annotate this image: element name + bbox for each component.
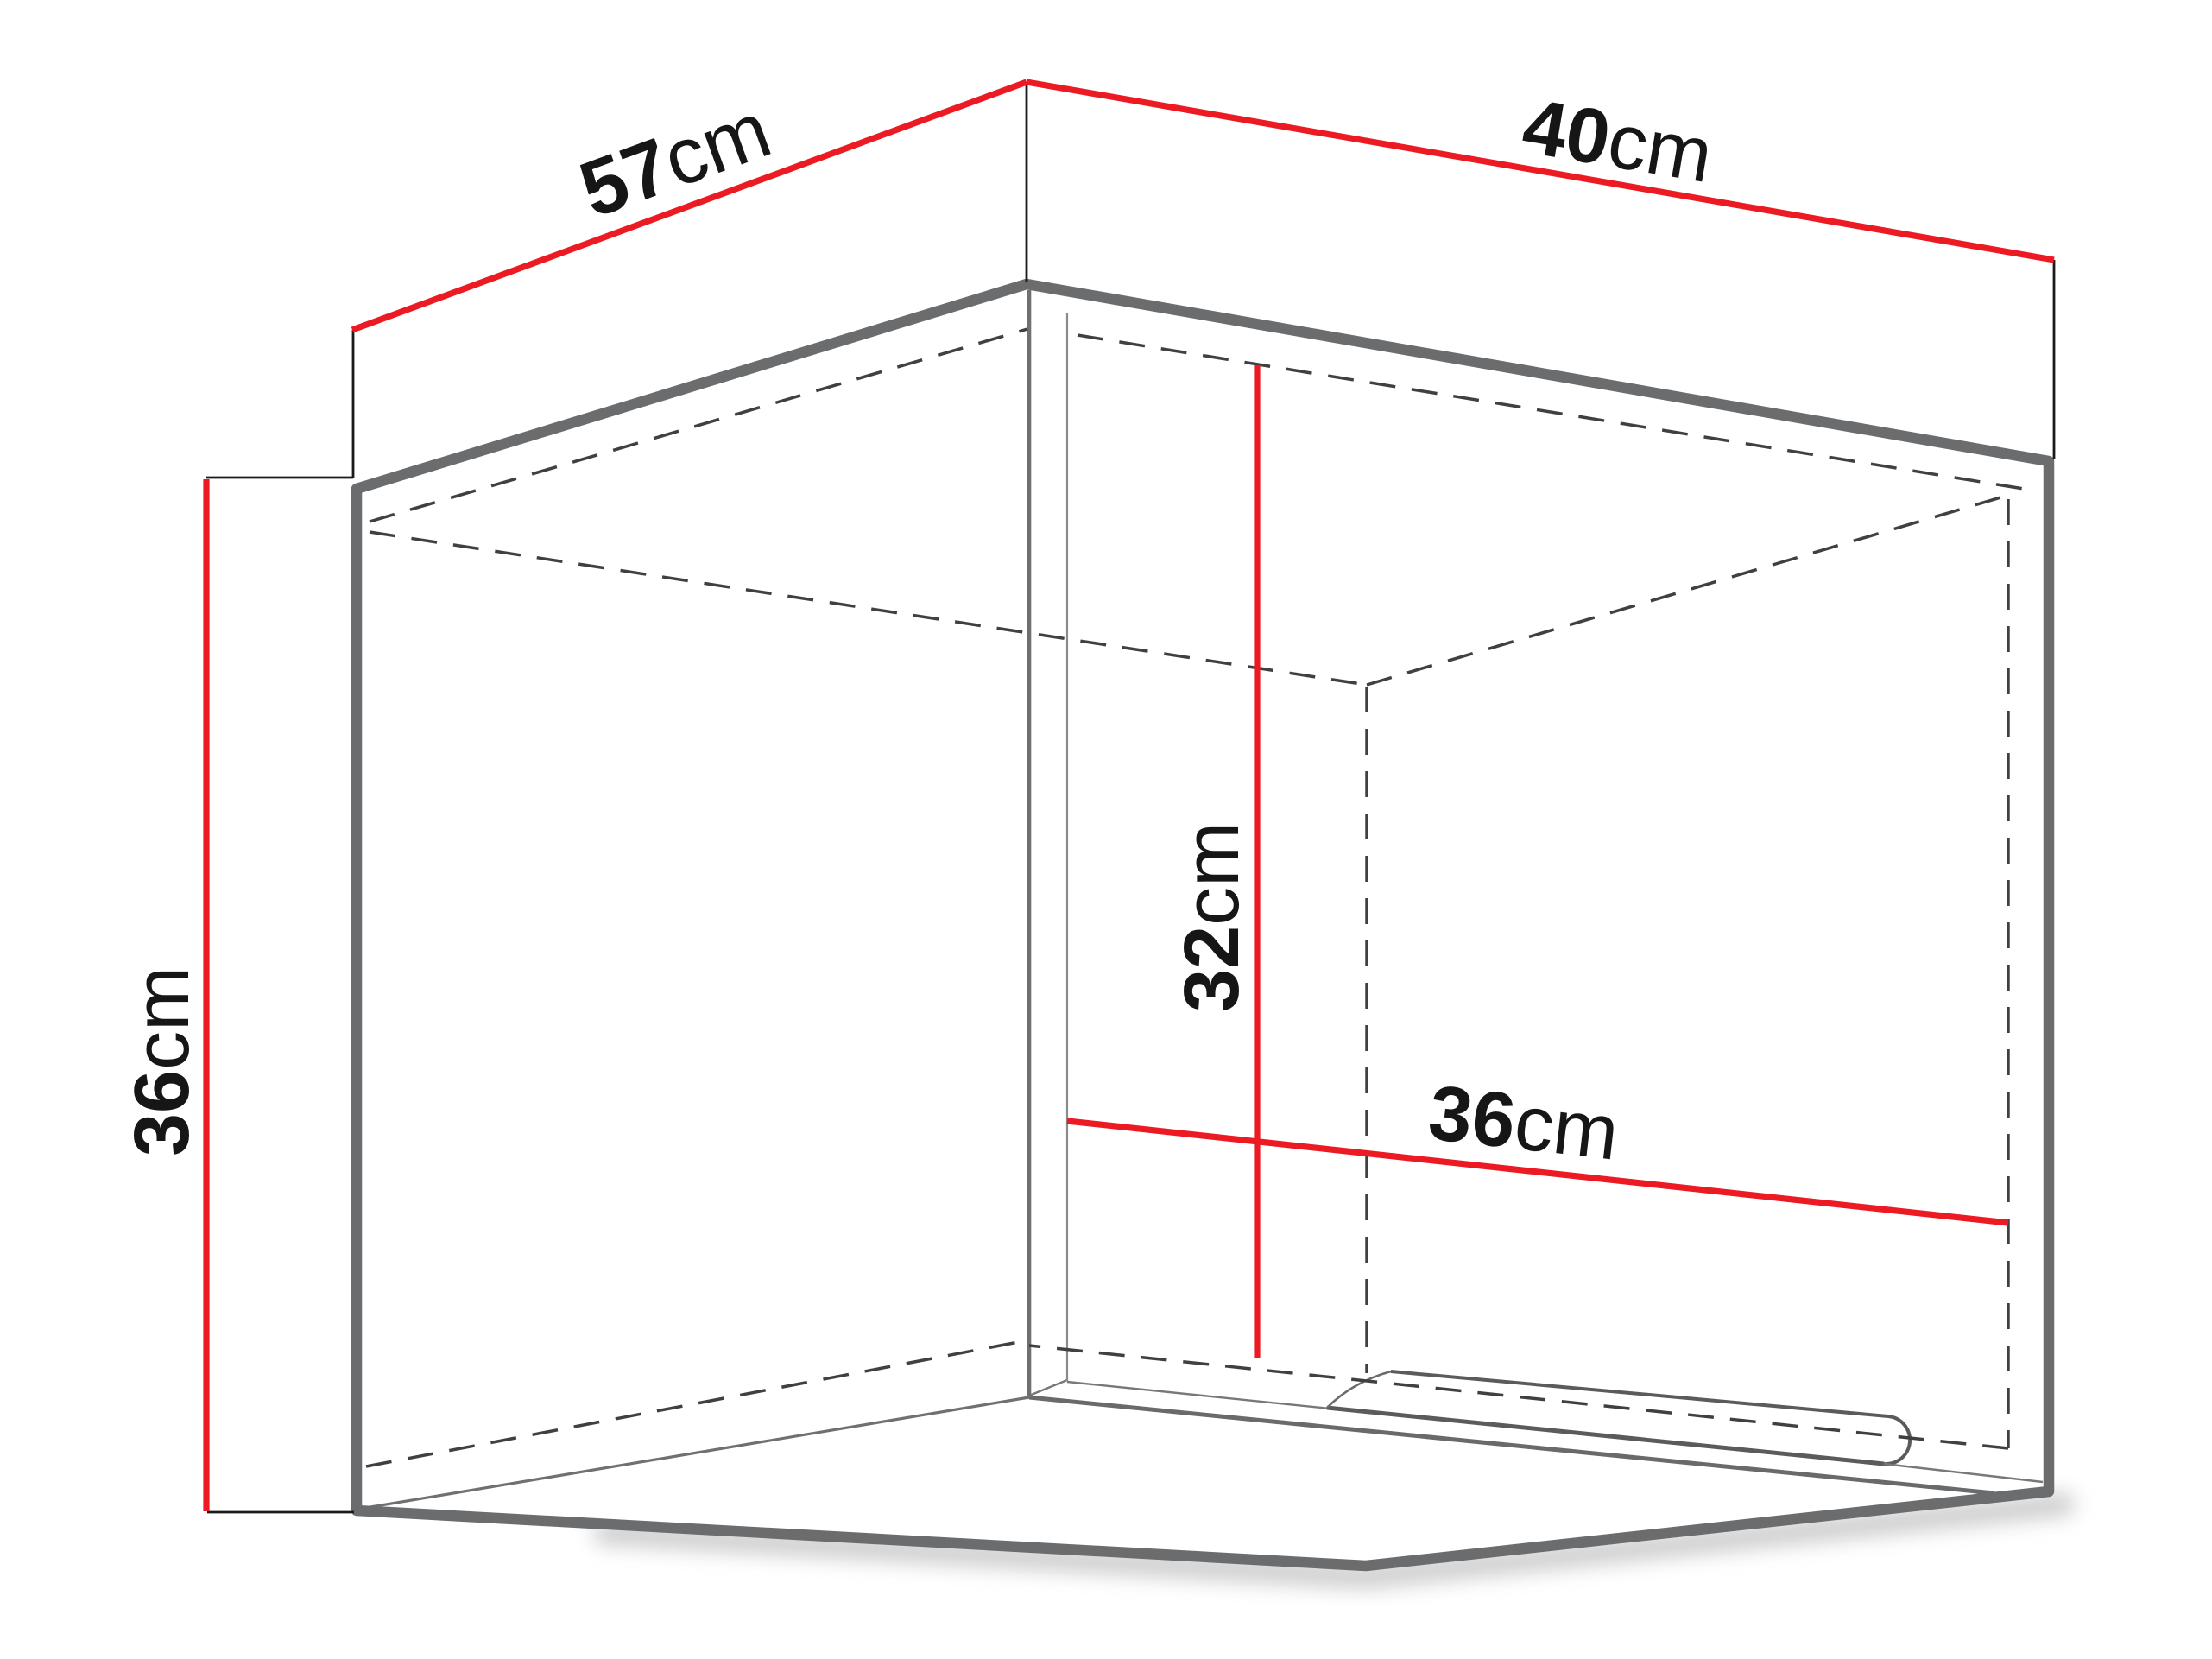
svg-text:32cm: 32cm (1169, 822, 1255, 1012)
svg-text:36cm: 36cm (119, 966, 205, 1156)
